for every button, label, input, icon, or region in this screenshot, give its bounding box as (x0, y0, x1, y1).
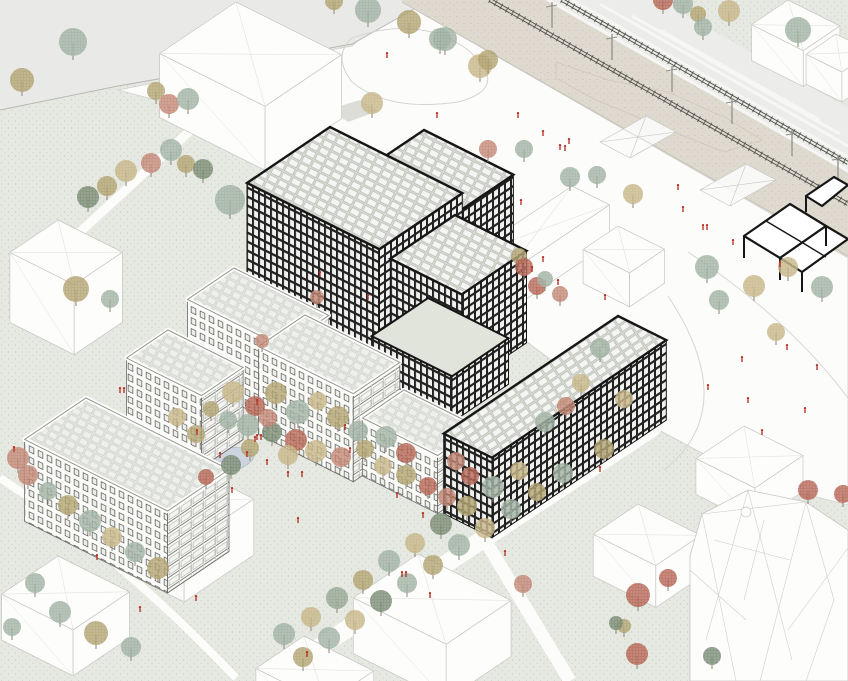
tree-crown-texture (510, 462, 528, 480)
axonometric-site-plan-svg (0, 0, 848, 681)
tree-crown-texture (419, 477, 437, 495)
figure-head (702, 224, 704, 226)
figure-head (219, 452, 221, 454)
tree-crown-texture (590, 338, 610, 358)
tree-crown-texture (7, 447, 29, 469)
tree-crown-texture (626, 643, 648, 665)
tree-crown-texture (49, 601, 71, 623)
tree-crown-texture (361, 92, 383, 114)
tree-crown-texture (703, 647, 721, 665)
tree-crown-texture (659, 569, 677, 587)
figure-head (260, 434, 262, 436)
tree-crown-texture (572, 374, 590, 392)
tree-crown-texture (423, 555, 443, 575)
figure-head (564, 145, 566, 147)
figure-head (266, 459, 268, 461)
figure-head (436, 112, 438, 114)
tree-crown-texture (378, 550, 400, 572)
tree-crown-texture (396, 465, 416, 485)
turret (741, 507, 751, 517)
tree-crown-texture (286, 400, 310, 424)
figure-head (677, 184, 679, 186)
figure-head (396, 492, 398, 494)
figure-head (367, 294, 369, 296)
tree-crown-texture (767, 323, 785, 341)
tree-crown-texture (588, 166, 606, 184)
tree-crown-texture (397, 10, 421, 34)
tree-crown-texture (168, 408, 186, 426)
tree-crown-texture (475, 518, 495, 538)
tree-crown-texture (219, 411, 237, 429)
tree-crown-texture (241, 439, 259, 457)
tree-crown-texture (515, 140, 533, 158)
tree-crown-texture (537, 271, 553, 287)
figure-head (139, 606, 141, 608)
figure-head (254, 436, 256, 438)
tree-crown-texture (259, 409, 277, 427)
tree-crown-texture (84, 621, 108, 645)
tree-crown-texture (326, 587, 348, 609)
figure-head (520, 199, 522, 201)
tree-crown-texture (101, 290, 119, 308)
tree-crown-texture (430, 513, 452, 535)
figure-head (531, 266, 533, 268)
figure-head (287, 471, 289, 473)
tree-crown-texture (535, 412, 555, 432)
tree-crown-texture (785, 17, 811, 43)
tree-crown-texture (159, 94, 179, 114)
tree-crown-texture (59, 28, 87, 56)
tree-crown-texture (397, 573, 417, 593)
tree-crown-texture (709, 290, 729, 310)
tree-crown-texture (147, 557, 169, 579)
figure-head (504, 550, 506, 552)
tree-crown-texture (293, 647, 313, 667)
figure-head (429, 592, 431, 594)
tree-crown-texture (79, 510, 101, 532)
tree-crown-texture (255, 334, 269, 348)
tree-crown-texture (215, 185, 245, 215)
tree-crown-texture (811, 276, 833, 298)
tree-crown-texture (615, 390, 633, 408)
figure-head (707, 384, 709, 386)
figure-head (119, 387, 121, 389)
tree-crown-texture (102, 527, 122, 547)
tree-crown-texture (457, 496, 477, 516)
figure-head (96, 554, 98, 556)
figure-head (732, 239, 734, 241)
figure-head (599, 466, 601, 468)
figure-head (682, 206, 684, 208)
figure-head (816, 364, 818, 366)
figure-head (542, 130, 544, 132)
tree-crown-texture (429, 28, 451, 50)
figure-head (123, 387, 125, 389)
figure-head (246, 451, 248, 453)
figure-head (306, 651, 308, 653)
figure-head (741, 356, 743, 358)
tree-crown-texture (63, 276, 89, 302)
tree-crown-texture (370, 590, 392, 612)
tree-crown-texture (265, 382, 287, 404)
tree-crown-texture (356, 440, 374, 458)
figure-head (401, 571, 403, 573)
tree-crown-texture (221, 455, 241, 475)
tree-crown-texture (478, 50, 498, 70)
tree-crown-texture (553, 463, 573, 483)
figure-head (13, 446, 15, 448)
site-plan (0, 0, 848, 681)
tree-crown-texture (552, 286, 568, 302)
tree-crown-texture (177, 155, 195, 173)
tree-crown-texture (121, 637, 141, 657)
tree-crown-texture (528, 483, 546, 501)
tree-crown-texture (115, 160, 137, 182)
tree-crown-texture (560, 167, 580, 187)
tree-crown-texture (479, 140, 497, 158)
tree-crown-texture (125, 542, 145, 562)
tree-crown-texture (743, 275, 765, 297)
tree-crown-texture (718, 0, 740, 22)
figure-head (559, 144, 561, 146)
tree-crown-texture (305, 440, 327, 462)
figure-head (761, 429, 763, 431)
tree-crown-texture (482, 476, 504, 498)
tree-crown-texture (438, 488, 456, 506)
figure-head (319, 271, 321, 273)
tree-crown-texture (198, 469, 214, 485)
tree-crown-texture (348, 421, 368, 441)
figure-head (256, 399, 258, 401)
tree-crown-texture (461, 467, 479, 485)
figure-head (786, 344, 788, 346)
tree-crown-texture (694, 18, 712, 36)
tree-crown-texture (447, 452, 465, 470)
figure-head (557, 279, 559, 281)
tree-crown-texture (405, 533, 425, 553)
tree-crown-texture (515, 258, 533, 276)
tree-crown-texture (203, 401, 219, 417)
figure-head (779, 261, 781, 263)
tree-crown-texture (309, 392, 327, 410)
tree-crown-texture (237, 414, 259, 436)
tree-crown-texture (58, 495, 78, 515)
figure-head (195, 595, 197, 597)
figure-head (405, 571, 407, 573)
tree-crown-texture (609, 616, 623, 630)
figure-head (804, 407, 806, 409)
figure-head (297, 517, 299, 519)
figure-head (196, 429, 198, 431)
tree-crown-texture (222, 381, 244, 403)
tree-crown-texture (310, 290, 324, 304)
tree-crown-texture (278, 445, 298, 465)
tree-crown-texture (374, 457, 392, 475)
tree-crown-texture (514, 575, 532, 593)
figure-head (349, 447, 351, 449)
figure-head (231, 487, 233, 489)
figure-head (517, 112, 519, 114)
tree-crown-texture (39, 482, 57, 500)
tree-crown-texture (396, 443, 416, 463)
figure-head (386, 52, 388, 54)
tree-crown-texture (448, 534, 470, 556)
tree-crown-texture (318, 627, 340, 649)
tree-crown-texture (273, 623, 295, 645)
tree-crown-texture (331, 447, 351, 467)
tree-crown-texture (623, 184, 643, 204)
figure-head (706, 224, 708, 226)
tree-crown-texture (301, 607, 321, 627)
tree-crown-texture (594, 439, 614, 459)
tree-crown-texture (187, 425, 205, 443)
figure-head (301, 471, 303, 473)
tree-crown-texture (3, 618, 21, 636)
figure-head (256, 434, 258, 436)
tree-crown-texture (177, 88, 199, 110)
tree-crown-texture (375, 426, 397, 448)
tree-crown-texture (557, 397, 575, 415)
tree-crown-texture (97, 176, 117, 196)
tree-crown-texture (25, 573, 45, 593)
tree-crown-texture (77, 186, 99, 208)
tree-crown-texture (798, 480, 818, 500)
tree-crown-texture (345, 610, 365, 630)
figure-head (604, 294, 606, 296)
tree-crown-texture (501, 499, 521, 519)
figure-head (542, 256, 544, 258)
tree-crown-texture (160, 139, 182, 161)
tree-crown-texture (695, 255, 719, 279)
tree-crown-texture (778, 257, 798, 277)
tree-crown-texture (10, 68, 34, 92)
figure-head (747, 397, 749, 399)
figure-head (344, 424, 346, 426)
tree-crown-texture (141, 153, 161, 173)
tree-crown-texture (193, 159, 213, 179)
figure-head (422, 512, 424, 514)
tree-crown-texture (353, 570, 373, 590)
tree-crown-texture (626, 583, 650, 607)
figure-head (568, 138, 570, 140)
